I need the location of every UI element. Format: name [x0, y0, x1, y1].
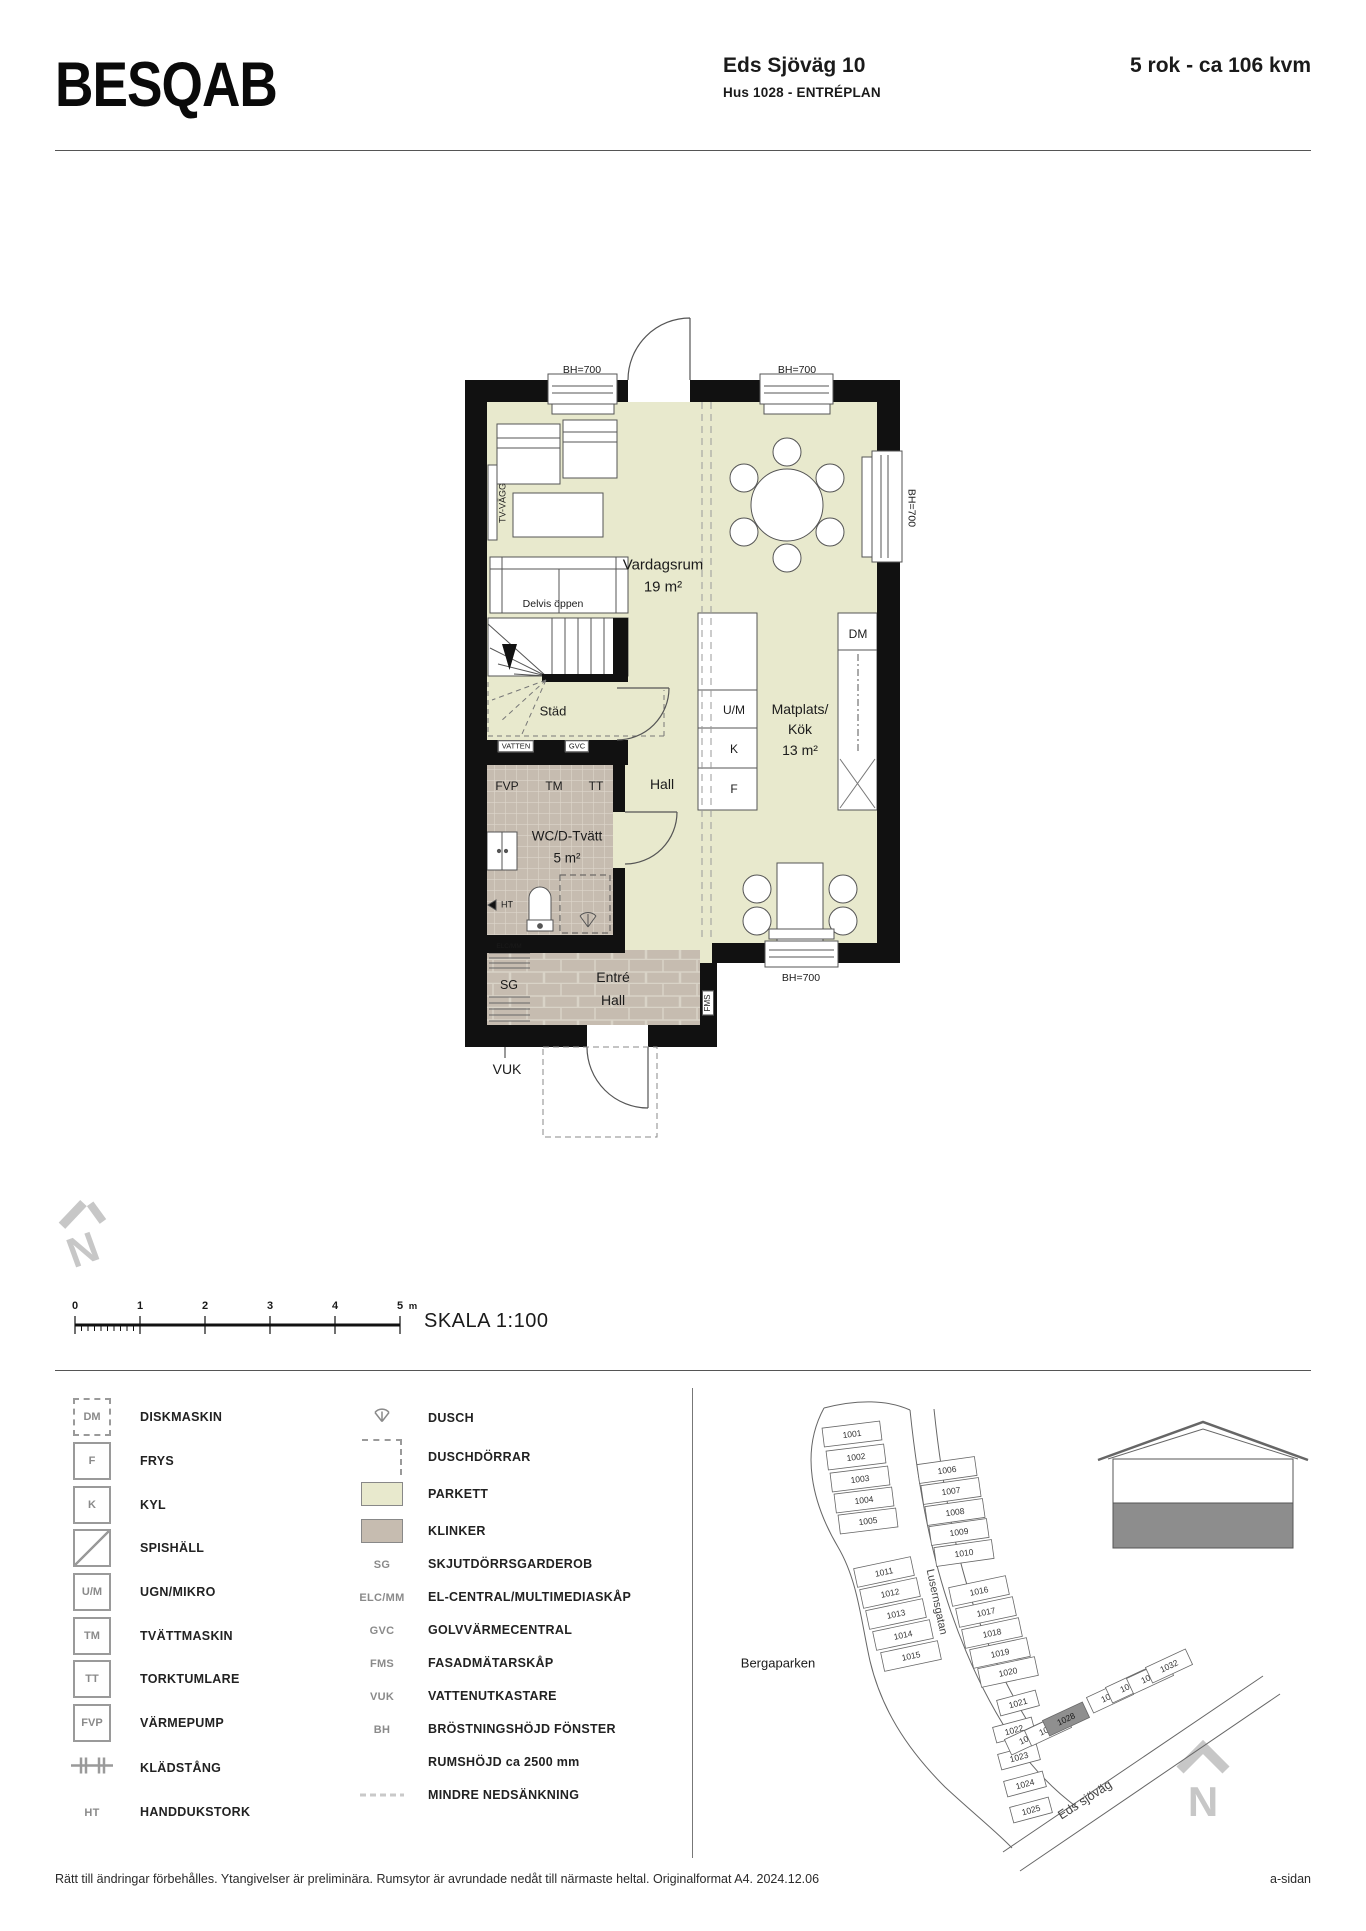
window-height-label: BH=700 — [906, 489, 917, 527]
legend-desc: KYL — [140, 1498, 166, 1512]
door-swing-icon — [628, 318, 690, 380]
legend-desc: BRÖSTNINGSHÖJD FÖNSTER — [428, 1722, 616, 1736]
room-label-hall: Hall — [650, 777, 674, 791]
north-letter: N — [1188, 1778, 1218, 1826]
legend-divider — [55, 1370, 1311, 1371]
fvp-tag: FVP — [495, 780, 518, 792]
sitemap-lot: 1021 — [997, 1690, 1040, 1716]
legend-desc: SKJUTDÖRRSGARDEROB — [428, 1557, 592, 1571]
room-label-kok: Kök — [788, 722, 812, 736]
window-height-label: BH=700 — [778, 365, 816, 376]
sitemap-lot: 1002 — [826, 1444, 886, 1470]
clothes-rail-icon — [69, 1756, 115, 1781]
swatch-parkett-icon — [361, 1482, 403, 1506]
legend-desc: UGN/MIKRO — [140, 1585, 216, 1599]
scale-tick: 5 — [397, 1300, 403, 1312]
legend-desc: SPISHÄLL — [140, 1541, 204, 1555]
delvis-oppen-label: Delvis öppen — [523, 599, 584, 610]
sitemap-lot: 1025 — [1010, 1797, 1053, 1823]
sitemap-lot: 1028 — [1042, 1702, 1089, 1736]
sitemap-lot: 1024 — [1004, 1771, 1047, 1797]
vuk-tag: VUK — [493, 1062, 522, 1076]
window-icon — [872, 451, 902, 562]
appliance-box-icon: F — [73, 1442, 111, 1480]
legend-abbr: SG — [374, 1555, 391, 1573]
appliance-box-icon: TT — [73, 1660, 111, 1698]
legend-desc: TVÄTTMASKIN — [140, 1629, 233, 1643]
legend-desc: EL-CENTRAL/MULTIMEDIASKÅP — [428, 1590, 631, 1604]
park-label: Bergaparken — [741, 1657, 815, 1670]
appliance-box-icon: TM — [73, 1617, 111, 1655]
legend-abbr: FMS — [370, 1654, 394, 1672]
kyl-tag: K — [730, 743, 738, 755]
window-icon — [548, 374, 617, 404]
room-area-wc: 5 m² — [554, 851, 581, 865]
legend-abbr: BH — [374, 1720, 391, 1738]
ht-tag: HT — [501, 901, 513, 910]
appliance-box-icon: U/M — [73, 1573, 111, 1611]
sg-tag: SG — [500, 979, 518, 992]
scale-label: SKALA 1:100 — [424, 1310, 548, 1333]
fms-tag: FMS — [702, 991, 714, 1016]
tt-tag: TT — [589, 780, 604, 792]
elcmm-tag: ELC/MM — [496, 944, 521, 951]
window-icon — [765, 941, 838, 967]
recess-dashes-icon — [360, 1794, 404, 1797]
scale-tick: 0 — [72, 1300, 78, 1312]
door-swing-icon — [587, 1047, 648, 1108]
gvc-tag: GVC — [565, 740, 589, 752]
floorplan-page: BESQAB Eds Sjöväg 10 5 rok - ca 106 kvm … — [0, 0, 1366, 1931]
window-icon — [760, 374, 833, 404]
entry-porch-dashed — [543, 1047, 657, 1137]
footer-disclaimer: Rätt till ändringar förbehålles. Ytangiv… — [55, 1872, 819, 1886]
tm-tag: TM — [545, 780, 562, 792]
frys-tag: F — [730, 783, 737, 795]
legend-desc: HANDDUKSTORK — [140, 1805, 250, 1819]
legend-desc: FASADMÄTARSKÅP — [428, 1656, 554, 1670]
room-label-entre: Entré — [596, 970, 629, 984]
room-area-matplats: 13 m² — [782, 743, 818, 757]
vatten-tag: VATTEN — [498, 740, 534, 752]
hob-icon — [73, 1529, 111, 1567]
legend-desc: GOLVVÄRMECENTRAL — [428, 1623, 572, 1637]
appliance-box-icon: K — [73, 1486, 111, 1524]
legend-desc: DUSCHDÖRRAR — [428, 1450, 531, 1464]
scale-tick: 3 — [267, 1300, 273, 1312]
floorplan-drawing — [465, 318, 902, 1137]
legend-desc: TORKTUMLARE — [140, 1672, 240, 1686]
floor-indicator-icon — [1098, 1422, 1308, 1548]
scale-bar — [75, 1316, 400, 1334]
legend-desc: FRYS — [140, 1454, 174, 1468]
legend-abbr: VUK — [370, 1687, 394, 1705]
tv-wall-label: TV-VÄGG — [499, 483, 508, 523]
window-height-label: BH=700 — [782, 973, 820, 984]
legend-abbr: HT — [84, 1803, 99, 1821]
legend-abbr: GVC — [370, 1621, 395, 1639]
room-label-vardagsrum: Vardagsrum — [623, 558, 704, 573]
appliance-box-icon: DM — [73, 1398, 111, 1436]
um-tag: U/M — [723, 704, 745, 716]
room-area-vardagsrum: 19 m² — [644, 580, 682, 595]
swatch-klinker-icon — [361, 1519, 403, 1543]
scale-unit: m — [409, 1301, 417, 1312]
sitemap-lot: 1001 — [822, 1421, 882, 1447]
scale-tick: 1 — [137, 1300, 143, 1312]
legend-vertical-divider — [692, 1388, 693, 1858]
legend-desc: PARKETT — [428, 1487, 488, 1501]
appliance-box-icon: FVP — [73, 1704, 111, 1742]
legend-desc: RUMSHÖJD ca 2500 mm — [428, 1755, 580, 1769]
legend-desc: DUSCH — [428, 1411, 474, 1425]
toilet-icon — [529, 887, 551, 920]
legend-abbr: ELC/MM — [359, 1588, 404, 1606]
scale-tick: 2 — [202, 1300, 208, 1312]
legend-desc: KLINKER — [428, 1524, 486, 1538]
dm-tag: DM — [849, 628, 868, 640]
north-arrow-icon — [1180, 1747, 1226, 1770]
legend-desc: VÄRMEPUMP — [140, 1716, 224, 1730]
shower-icon — [370, 1406, 394, 1431]
legend-desc: VATTENUTKASTARE — [428, 1689, 557, 1703]
window-height-label: BH=700 — [563, 365, 601, 376]
entre-klinker-floor — [487, 950, 700, 1025]
legend-desc: MINDRE NEDSÄNKNING — [428, 1788, 579, 1802]
shower-doors-icon — [362, 1439, 402, 1475]
legend-desc: KLÄDSTÅNG — [140, 1761, 221, 1775]
room-label-entre-hall: Hall — [601, 993, 625, 1007]
room-label-wc: WC/D-Tvätt — [532, 829, 603, 843]
legend-desc: DISKMASKIN — [140, 1410, 222, 1424]
footer-page-label: a-sidan — [1270, 1872, 1311, 1886]
room-label-stad: Städ — [540, 705, 567, 718]
scale-tick: 4 — [332, 1300, 338, 1312]
room-label-matplats: Matplats/ — [772, 702, 829, 716]
